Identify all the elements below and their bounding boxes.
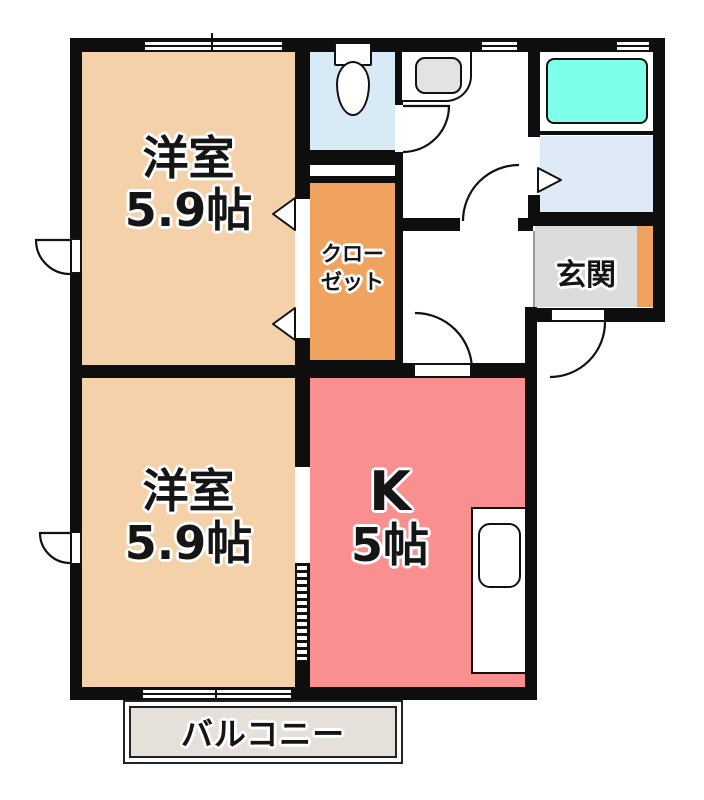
entrance-door-leaf <box>550 308 606 322</box>
kitchen-name: K <box>310 464 470 521</box>
window-washroom <box>482 40 517 52</box>
bedroom-top-label: 洋室 5.9帖 <box>82 133 295 236</box>
wall-toilet-bottom <box>310 150 395 165</box>
closet-label: クロー ゼット <box>306 240 399 297</box>
kitchen-label: K 5帖 <box>310 464 470 569</box>
balcony-label: バルコニー <box>181 709 345 755</box>
door-arc-entrance <box>550 322 605 377</box>
door-arc-bedroombottom-outer <box>40 533 70 563</box>
washbasin-sink-icon <box>415 57 462 94</box>
balcony-inner: バルコニー <box>129 706 397 758</box>
closet-name-line1: クロー <box>306 240 399 268</box>
door-arc-bedroomtop-outer <box>36 240 70 274</box>
window-bedroom-top <box>145 40 282 52</box>
window-balcony-door <box>143 688 291 700</box>
wall-closet-topline <box>310 176 395 183</box>
bedroomtop-outer-door-leaf <box>70 238 82 274</box>
closet-name-line2: ゼット <box>306 268 399 296</box>
sliding-door-gap <box>295 467 310 563</box>
sliding-door-track <box>296 563 308 660</box>
bathtub-icon <box>546 58 648 124</box>
washroom-door-leaf <box>460 218 518 231</box>
kitchen-door-leaf <box>413 363 472 378</box>
wall-closet-bottom <box>310 360 403 378</box>
bedroom-top-name: 洋室 <box>82 133 295 185</box>
room-hall <box>403 231 533 363</box>
balcony: バルコニー <box>123 700 403 764</box>
bedroom-bottom-size: 5.9帖 <box>82 518 295 570</box>
bedroom-bottom-name: 洋室 <box>82 466 295 518</box>
dressing-door-leaf <box>528 137 540 195</box>
entrance-label: 玄関 <box>535 250 637 294</box>
wall-dressing-entrance <box>528 212 665 226</box>
wall-bath-dressing-divider <box>540 131 653 135</box>
bedroombottom-outer-door-leaf <box>70 531 82 565</box>
wall-bottom <box>70 687 537 700</box>
entrance-name: 玄関 <box>556 258 616 293</box>
window-bathroom <box>617 40 649 52</box>
wall-right-upper <box>653 38 665 322</box>
bedroom-top-size: 5.9帖 <box>82 185 295 237</box>
wall-left <box>70 38 82 700</box>
toilet-door-leaf <box>395 105 403 152</box>
bedroom-bottom-label: 洋室 5.9帖 <box>82 466 295 569</box>
kitchen-size: 5帖 <box>310 521 470 569</box>
floor-plan: バルコニー 洋室 5.9帖 洋室 5.9帖 K 5帖 クロー ゼット 玄関 <box>0 0 704 800</box>
entrance-step-strip <box>637 226 653 307</box>
kitchen-sink-icon <box>478 523 521 588</box>
wall-between-bedrooms <box>82 365 295 378</box>
room-dressing <box>540 136 653 212</box>
wall-right-lower <box>525 363 537 700</box>
